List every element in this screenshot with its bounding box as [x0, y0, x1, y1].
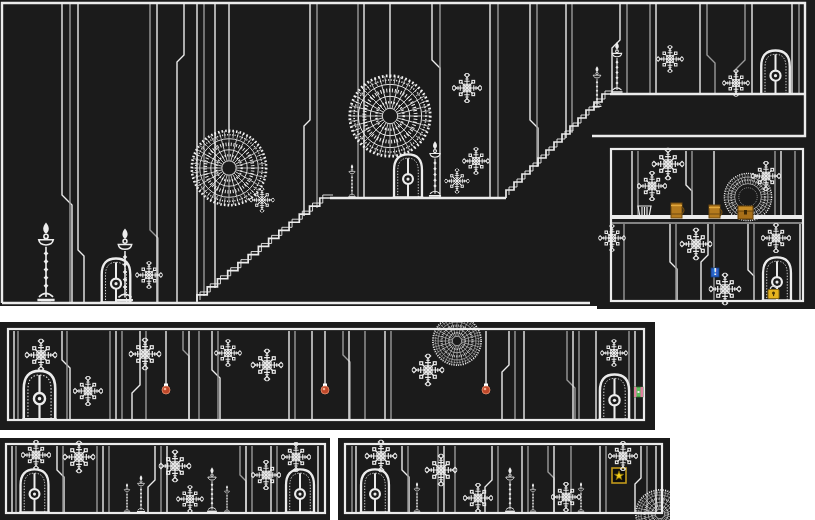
lamp-post	[224, 485, 230, 513]
wire-cup-item[interactable]	[638, 206, 651, 219]
snowflake-ornament	[281, 442, 312, 473]
door[interactable]	[19, 469, 49, 513]
snowflake-ornament	[600, 339, 628, 367]
door[interactable]	[760, 51, 791, 95]
staircase	[197, 195, 333, 303]
snowflake-ornament	[62, 440, 95, 473]
level-map-stage: !	[0, 0, 815, 520]
snowflake-ornament	[158, 449, 191, 482]
circuit-traces	[14, 331, 635, 419]
snowflake-ornament	[462, 147, 490, 175]
door[interactable]	[360, 469, 390, 513]
berry-lamp	[482, 384, 490, 395]
snowflake-ornament	[651, 147, 684, 180]
lamp-post	[414, 482, 421, 513]
snowflake-ornament	[608, 441, 639, 472]
panel-corridor-wide	[0, 322, 655, 430]
snowflake-ornament	[761, 223, 792, 254]
lamp-post	[207, 467, 217, 512]
snowflake-ornament	[656, 45, 684, 73]
door[interactable]	[22, 371, 56, 420]
panel-border	[8, 329, 644, 420]
door[interactable]	[285, 469, 315, 513]
snowflake-ornament	[250, 348, 283, 381]
snowflake-ornament	[551, 482, 582, 513]
panel-hall-right	[338, 438, 670, 520]
snowflake-ornament	[637, 171, 668, 202]
lamp-post	[348, 164, 355, 198]
snowflake-ornament	[128, 337, 161, 370]
snowflake-ornament	[135, 261, 163, 289]
snowflake-ornament	[424, 453, 457, 486]
door[interactable]	[599, 375, 631, 420]
berry-lamp	[162, 384, 170, 395]
panel-interior-room: !	[597, 140, 815, 309]
gold-tankard-item[interactable]	[671, 203, 684, 218]
gold-tankard-item[interactable]	[709, 205, 722, 218]
lamp-post	[611, 42, 622, 93]
lamp-post	[530, 483, 536, 513]
save-point-chip[interactable]	[634, 387, 643, 397]
door[interactable]	[393, 154, 423, 198]
lamp-post	[505, 467, 515, 512]
snowflake-ornament	[463, 483, 494, 514]
lamp-post	[137, 475, 145, 513]
lamp-post	[124, 483, 130, 513]
snowflake-ornament	[24, 338, 57, 371]
snowflake-ornament	[598, 224, 626, 252]
berry-lamp	[321, 384, 329, 395]
svg-text:!: !	[713, 268, 717, 277]
lace-mandala	[192, 131, 266, 205]
door[interactable]	[100, 259, 131, 303]
circuit-traces	[12, 446, 318, 512]
snowflake-ornament	[452, 73, 483, 104]
hint-sign[interactable]: !	[711, 268, 719, 277]
lamp-post	[578, 482, 585, 513]
lace-mandala	[350, 76, 430, 156]
snowflake-ornament	[751, 161, 782, 192]
lamp-post	[37, 223, 54, 303]
panel-hall-left	[0, 438, 330, 520]
snowflake-ornament	[411, 353, 444, 386]
snowflake-ornament	[444, 168, 470, 194]
treasure-chest-item[interactable]	[738, 206, 753, 219]
snowflake-ornament	[73, 376, 104, 407]
lace-mandala	[636, 490, 670, 520]
circuit-traces	[352, 446, 656, 512]
snowflake-ornament	[176, 485, 204, 513]
lamp-post	[429, 141, 441, 197]
